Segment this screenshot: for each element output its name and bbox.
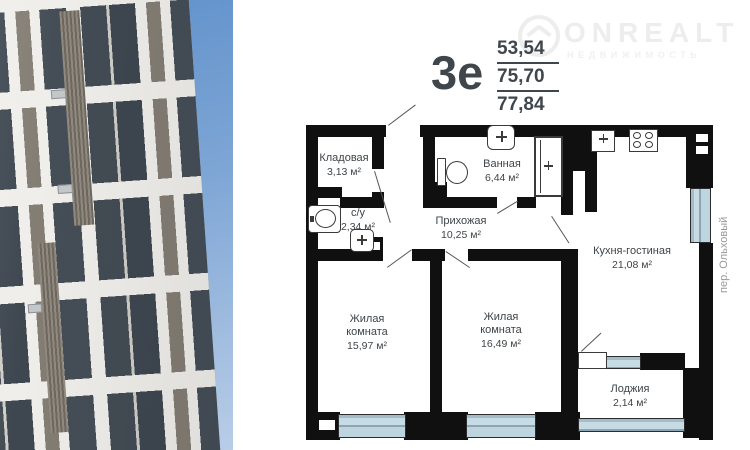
basin-cross	[361, 235, 363, 245]
room-label-kitchen-living: Кухня-гостиная 21,08 м²	[582, 245, 682, 271]
window-bedroom1	[338, 414, 406, 438]
room-area: 2,34 м²	[318, 221, 398, 233]
door-bedroom2	[445, 251, 470, 268]
ac-unit	[57, 184, 73, 194]
room-area: 2,14 м²	[590, 397, 670, 409]
wall-loggia-top	[640, 353, 685, 370]
room-name: Жилая комната	[337, 313, 397, 339]
area-summary: 53,54 75,70 77,84	[497, 37, 559, 118]
room-area: 10,25 м²	[421, 229, 501, 241]
facade-louver-panel	[37, 242, 68, 433]
toilet-icon	[437, 158, 446, 186]
building-photo	[0, 0, 233, 450]
wall-kitchen-left	[561, 249, 578, 440]
window-bedroom2	[466, 414, 536, 438]
ac-unit	[28, 303, 43, 313]
door-loggia-leaf	[578, 352, 607, 369]
room-label-bedroom2: Жилая комната 16,49 м²	[471, 311, 531, 350]
door-bathroom	[497, 201, 518, 214]
door-kitchen	[551, 216, 569, 243]
burner	[633, 141, 641, 148]
room-label-hallway: Прихожая 10,25 м²	[421, 215, 501, 241]
wall-niche	[319, 420, 335, 430]
living-area-value: 53,54	[497, 37, 559, 64]
window-loggia-door-side	[606, 356, 641, 369]
facade-louver-panel	[59, 10, 94, 226]
room-name: Ванная	[462, 158, 542, 171]
main-area-value: 75,70	[497, 65, 559, 92]
stove-icon	[629, 129, 658, 152]
room-name: Кладовая	[304, 152, 384, 165]
room-name: с/у	[318, 207, 398, 220]
door-bedroom1	[387, 249, 412, 267]
wall-bathroom-left	[423, 137, 435, 182]
room-name: Жилая комната	[471, 311, 531, 337]
building-facade	[0, 0, 221, 450]
room-name: Прихожая	[421, 215, 501, 228]
tub-faucet	[310, 216, 314, 222]
window-kitchen	[690, 188, 711, 243]
wall-storage-bottom	[306, 187, 342, 198]
door-entrance	[388, 105, 416, 126]
wall-bottom	[404, 412, 468, 440]
room-area: 15,97 м²	[337, 340, 397, 352]
basin-cross	[501, 131, 503, 142]
room-name: Лоджия	[590, 383, 670, 396]
wall-shaft-right	[585, 171, 597, 212]
washbasin-icon	[487, 125, 515, 150]
wall-niche	[696, 134, 708, 142]
window-loggia	[578, 418, 685, 432]
room-label-loggia: Лоджия 2,14 м²	[590, 383, 670, 409]
kitchen-sink-icon	[591, 130, 615, 152]
burner	[633, 132, 641, 139]
door-loggia-swing	[581, 333, 601, 352]
room-label-storage: Кладовая 3,13 м²	[304, 152, 384, 178]
wall-top	[306, 125, 386, 137]
screenshot-root: ONREALT НЕДВИЖИМОСТЬ 3е 53,54 75,70 77,8…	[0, 0, 750, 450]
watermark-brand: ONREALT	[564, 17, 739, 49]
room-label-bedroom1: Жилая комната 15,97 м²	[337, 313, 397, 352]
room-area: 21,08 м²	[582, 259, 682, 271]
total-area-value: 77,84	[497, 93, 559, 118]
room-label-wc: с/у 2,34 м²	[318, 207, 398, 233]
room-area: 16,49 м²	[471, 338, 531, 350]
burner	[645, 141, 653, 148]
room-area: 6,44 м²	[462, 172, 542, 184]
street-label: пер. Ольховый	[718, 223, 732, 293]
watermark-tagline: НЕДВИЖИМОСТЬ	[567, 50, 701, 60]
burner	[645, 132, 653, 139]
tub-drain	[548, 161, 550, 170]
sink-cross	[603, 134, 605, 143]
wall-bathroom-bottom	[423, 197, 497, 208]
wall-mid	[468, 249, 576, 261]
room-label-bathroom: Ванная 6,44 м²	[462, 158, 542, 184]
room-area: 3,13 м²	[304, 166, 384, 178]
wall-niche	[696, 146, 708, 154]
ac-unit	[51, 89, 67, 99]
wall-loggia-right	[683, 368, 711, 438]
unit-type-label: 3е	[431, 45, 483, 100]
wall-bedroom-divider	[430, 255, 442, 412]
room-name: Кухня-гостиная	[582, 245, 682, 258]
wall-bathroom-bottom	[517, 197, 536, 208]
